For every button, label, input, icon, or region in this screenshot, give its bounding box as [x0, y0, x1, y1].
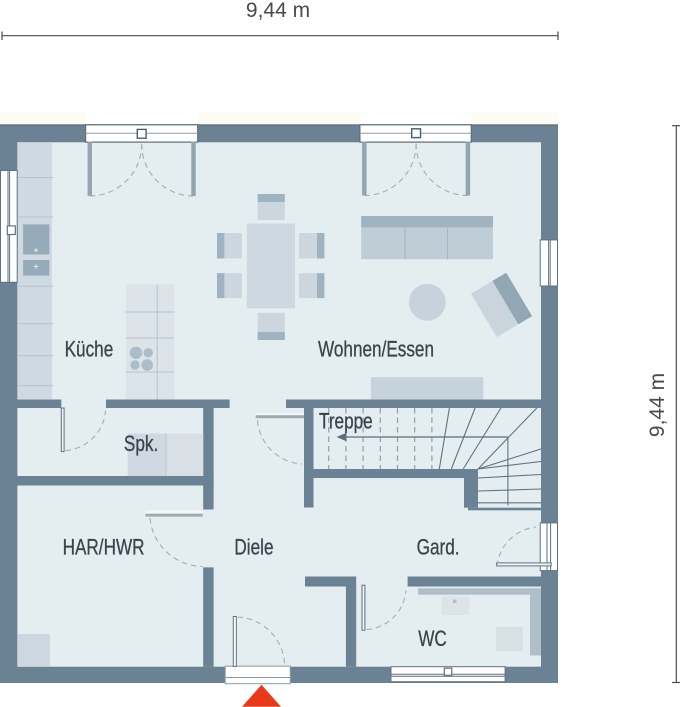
svg-text:Diele: Diele [234, 536, 273, 561]
svg-text:Wohnen/Essen: Wohnen/Essen [318, 338, 434, 363]
svg-text:9,44 m: 9,44 m [646, 373, 669, 437]
svg-text:HAR/HWR: HAR/HWR [63, 536, 145, 561]
svg-text:WC: WC [418, 627, 447, 652]
svg-text:Küche: Küche [65, 338, 114, 363]
svg-text:Spk.: Spk. [124, 432, 158, 457]
svg-text:9,44 m: 9,44 m [246, 0, 310, 22]
svg-text:Gard.: Gard. [417, 536, 460, 561]
svg-text:Treppe: Treppe [319, 410, 373, 435]
